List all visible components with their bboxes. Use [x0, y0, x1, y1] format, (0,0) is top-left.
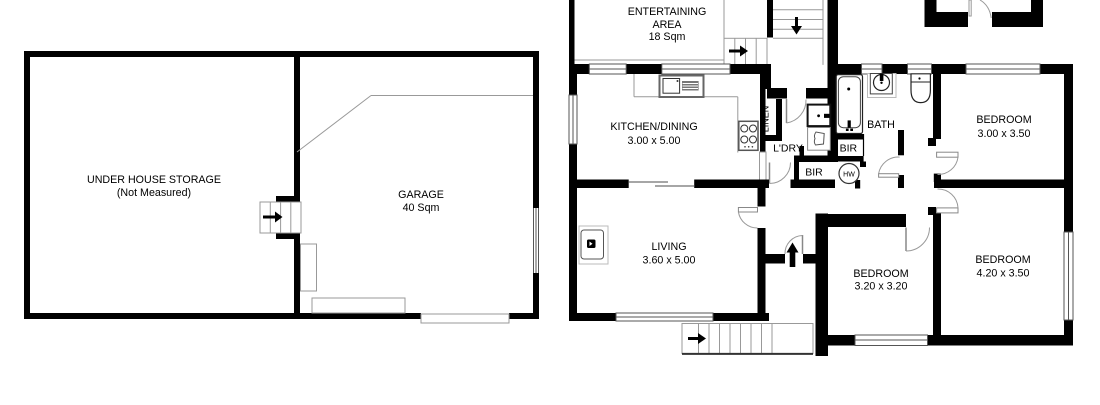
- svg-text:KITCHEN/DINING: KITCHEN/DINING: [610, 121, 697, 133]
- svg-text:UNDER HOUSE STORAGE: UNDER HOUSE STORAGE: [87, 174, 221, 186]
- svg-text:BEDROOM: BEDROOM: [853, 268, 908, 280]
- svg-text:(Not Measured): (Not Measured): [117, 187, 191, 199]
- svg-text:BIR: BIR: [805, 167, 823, 179]
- svg-text:BIR: BIR: [840, 143, 858, 155]
- svg-text:3.00 x 3.50: 3.00 x 3.50: [978, 128, 1031, 140]
- svg-text:4.20 x 3.50: 4.20 x 3.50: [977, 268, 1030, 280]
- svg-text:GARAGE: GARAGE: [398, 189, 444, 201]
- svg-text:18 Sqm: 18 Sqm: [649, 31, 686, 43]
- svg-text:ENTERTAINING: ENTERTAINING: [628, 6, 707, 18]
- svg-text:LINEN: LINEN: [760, 106, 770, 133]
- svg-text:BEDROOM: BEDROOM: [976, 114, 1031, 126]
- svg-text:BATH: BATH: [867, 119, 895, 131]
- svg-text:3.20 x 3.20: 3.20 x 3.20: [855, 281, 908, 293]
- svg-text:3.00 x 5.00: 3.00 x 5.00: [628, 135, 681, 147]
- svg-text:AREA: AREA: [652, 19, 682, 31]
- svg-text:HW: HW: [843, 172, 855, 179]
- svg-text:LIVING: LIVING: [651, 241, 686, 253]
- svg-text:L'DRY: L'DRY: [773, 143, 803, 155]
- svg-text:3.60 x 5.00: 3.60 x 5.00: [643, 255, 696, 267]
- svg-text:BEDROOM: BEDROOM: [975, 254, 1030, 266]
- svg-text:40 Sqm: 40 Sqm: [403, 202, 440, 214]
